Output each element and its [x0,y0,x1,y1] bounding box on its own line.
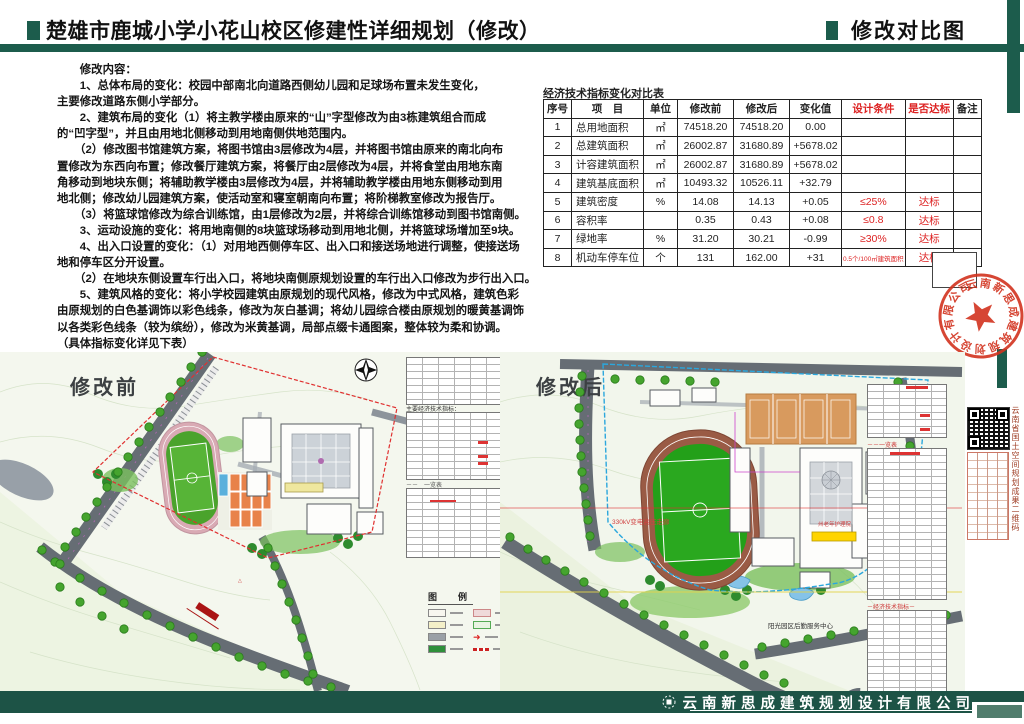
street-tree [506,533,514,541]
street-tree [576,388,584,396]
street-tree [524,545,532,553]
street-tree [212,643,220,651]
street-tree [636,376,644,384]
street-tree [264,544,272,552]
company-stamp: 云南新思成建筑规划设计有限公司 [925,250,1024,366]
mini-table [406,357,502,405]
street-tree [93,498,101,506]
street-tree [600,589,608,597]
street-tree [661,376,669,384]
street-tree [850,627,858,635]
street-tree [38,546,46,554]
company-logo-icon [662,695,676,709]
north-arrow-before [355,359,377,381]
mini-table [867,384,947,438]
street-tree [177,378,185,386]
street-tree [271,562,279,570]
svg-text:△: △ [238,578,242,584]
header-accent-square-right [826,21,838,40]
street-tree [680,631,688,639]
street-tree [82,513,90,521]
street-tree [98,612,106,620]
street-tree [156,408,164,416]
street-tree [166,393,174,401]
street-tree [620,600,628,608]
mini-table [867,610,947,692]
service-note: 阳光园区后勤服务中心 [768,621,834,630]
plan-after-label: 修改后 [535,375,605,399]
mini-red-mark [920,414,930,417]
table-body: 1总用地面积㎡74518.2074518.200.002总建筑面积㎡26002.… [544,118,982,267]
street-tree [120,625,128,633]
mini-red-mark [478,441,488,444]
street-tree [327,683,335,691]
street-tree [258,662,266,670]
street-tree [804,635,812,643]
right-edge-bar [1007,0,1020,113]
street-tree [166,622,174,630]
mini-red-mark [430,500,456,502]
page-title: 楚雄市鹿城小学小花山校区修建性详细规划（修改） [46,15,541,45]
basketball-courts-after [746,394,856,444]
legend-title: 图 例 [428,590,473,605]
street-tree [189,633,197,641]
street-tree [781,639,789,647]
street-tree [686,377,694,385]
street-tree [578,468,586,476]
street-tree [124,453,132,461]
street-tree [827,631,835,639]
nursing-note: 州老年护理院 [818,520,852,528]
yellow-building-before [285,483,323,492]
street-tree [285,598,293,606]
street-tree [660,621,668,629]
street-tree [561,567,569,575]
street-tree [56,583,64,591]
footer-underline [690,710,975,711]
street-tree [577,452,585,460]
plan-before-label: 修改前 [69,375,139,399]
mini-red-mark [478,455,488,458]
footer-accent-block [977,705,1022,718]
qr-info-box [967,452,1009,540]
street-tree [586,532,594,540]
street-tree [135,438,143,446]
street-tree [780,679,788,687]
street-tree [758,643,766,651]
mini-red-mark [890,452,920,455]
street-tree [576,436,584,444]
street-tree [304,652,312,660]
street-tree [578,372,586,380]
street-tree [235,653,243,661]
street-tree [711,378,719,386]
street-tree [720,651,728,659]
street-tree [582,500,590,508]
street-tree [187,363,195,371]
street-tree [56,560,64,568]
header-accent-square-left [27,21,40,40]
yellow-building-after [812,532,856,541]
mini-table [867,448,947,600]
street-tree [76,598,84,606]
street-tree [145,423,153,431]
street-tree [61,543,69,551]
stamp-star [960,295,1000,335]
street-tree [575,404,583,412]
street-tree [580,578,588,586]
mini-red-mark [478,462,488,465]
street-tree [120,599,128,607]
street-tree [760,671,768,679]
corridor-note: 330kV变电高压走廊 [612,517,670,526]
mini-table [406,412,502,480]
street-tree [298,634,306,642]
street-tree [98,587,106,595]
table-header: 序号项 目单位修改前修改后变化值设计条件是否达标备注 [544,100,982,119]
street-tree [611,375,619,383]
sheet-title: 修改对比图 [851,15,966,45]
street-tree [584,516,592,524]
qr-caption: 云南省国土空间规划成果二维码 [1009,406,1021,536]
qr-code [967,407,1010,450]
street-tree [72,528,80,536]
legend-arrow-icon: ➜ [473,634,481,640]
street-tree [278,580,286,588]
header-divider-bar [0,44,1024,52]
indicator-table: 序号项 目单位修改前修改后变化值设计条件是否达标备注 1总用地面积㎡74518.… [543,99,982,267]
street-tree [281,670,289,678]
street-tree [103,483,111,491]
street-tree [575,420,583,428]
street-tree [740,661,748,669]
mini-red-mark [920,428,930,431]
mini-table [406,488,502,558]
street-tree [640,611,648,619]
street-tree [292,616,300,624]
mini-red-mark [906,386,928,389]
street-tree [114,468,122,476]
street-tree [580,484,588,492]
modification-notes: 修改内容： 1、总体布局的变化：校园中部南北向道路西侧幼儿园和足球场布置未发生变… [57,62,562,352]
street-tree [700,641,708,649]
street-tree [76,574,84,582]
street-tree [309,670,317,678]
street-tree [143,611,151,619]
street-tree [542,556,550,564]
